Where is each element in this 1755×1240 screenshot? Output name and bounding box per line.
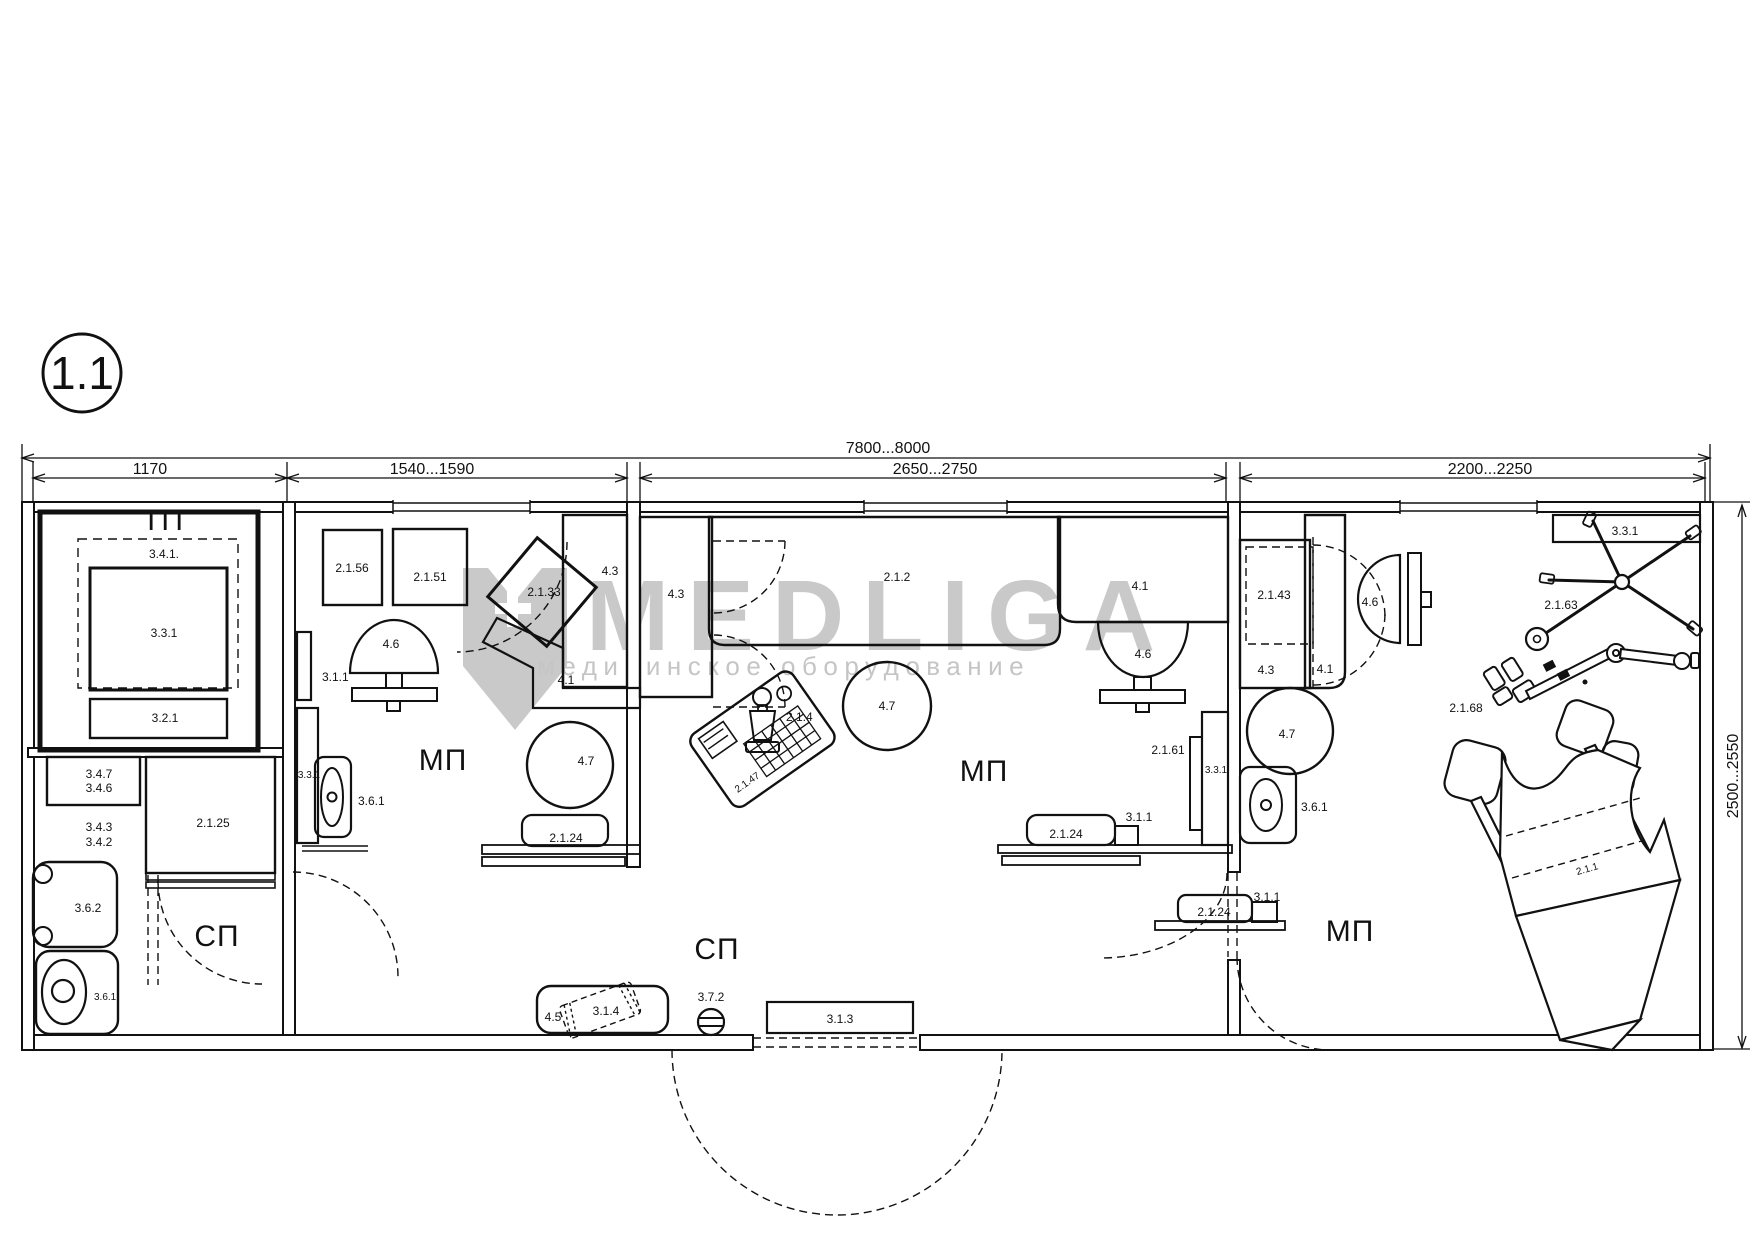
dim-total: 7800...8000 [846, 440, 931, 457]
label-mp2-41: 4.1 [1132, 579, 1149, 593]
dim-seg4: 2200...2250 [1448, 461, 1533, 478]
label-sp1-342: 3.4.2 [86, 835, 113, 849]
label-mp3-46: 4.6 [1362, 595, 1379, 609]
dim-seg3: 2650...2750 [893, 461, 978, 478]
room-label-sp2: СП [694, 933, 739, 966]
label-mp2-2161: 2.1.61 [1151, 743, 1185, 757]
label-mp1-2133: 2.1.33 [527, 585, 561, 599]
label-mp2-43: 4.3 [668, 587, 685, 601]
label-sp1-346: 3.4.6 [86, 781, 113, 795]
label-sp1-361: 3.6.1 [94, 992, 117, 1003]
label-mp3-331: 3.3.1 [1612, 524, 1639, 538]
label-mp2-46: 4.6 [1135, 647, 1152, 661]
label-mp2-214: 2.1.4 [786, 710, 813, 724]
room-label-mp3: МП [1326, 915, 1375, 948]
label-mp3-2124: 2.1.24 [1197, 905, 1231, 919]
label-sp2-314: 3.1.4 [593, 1004, 620, 1018]
label-tp-341: 3.4.1. [149, 547, 179, 561]
label-mp2-2147: 2.1.47 [733, 770, 762, 795]
dim-seg2: 1540...1590 [390, 461, 475, 478]
label-mp3-2168: 2.1.68 [1449, 701, 1483, 715]
label-mp2-47: 4.7 [879, 699, 896, 713]
room-label-tp: ТП [142, 504, 184, 537]
label-mp1-331: 3.3.1 [298, 770, 321, 781]
label-sp1-343: 3.4.3 [86, 820, 113, 834]
floorplan-canvas: MEDLIGA медицинское оборудование 1.1 [0, 0, 1755, 1240]
label-mp2-2124: 2.1.24 [1049, 827, 1083, 841]
label-mp2-311: 3.1.1 [1126, 810, 1153, 824]
label-tp-321: 3.2.1 [152, 711, 179, 725]
room-sp1-equipment [33, 757, 275, 1034]
label-mp3-2143: 2.1.43 [1257, 588, 1291, 602]
dim-right: 2500...2550 [1725, 734, 1742, 819]
label-mp1-2156: 2.1.56 [335, 561, 369, 575]
label-mp3-361: 3.6.1 [1301, 800, 1328, 814]
label-mp2-212: 2.1.2 [884, 570, 911, 584]
label-mp1-43: 4.3 [602, 564, 619, 578]
watermark-tagline: медицинское оборудование [537, 651, 1030, 681]
label-mp1-46: 4.6 [383, 637, 400, 651]
sheet-badge: 1.1 [43, 334, 121, 412]
label-mp1-361: 3.6.1 [358, 794, 385, 808]
label-mp1-47: 4.7 [578, 754, 595, 768]
label-mp2-331: 3.3.1 [1205, 765, 1228, 776]
label-sp2-372: 3.7.2 [698, 990, 725, 1004]
floorplan-svg: MEDLIGA медицинское оборудование 1.1 [0, 0, 1755, 1240]
dim-seg1: 1170 [133, 461, 168, 478]
badge-label: 1.1 [50, 347, 114, 399]
label-mp3-311: 3.1.1 [1254, 890, 1281, 904]
label-mp3-2163: 2.1.63 [1544, 598, 1578, 612]
label-sp1-347: 3.4.7 [86, 767, 113, 781]
label-sp1-362: 3.6.2 [75, 901, 102, 915]
label-tp-331: 3.3.1 [151, 626, 178, 640]
label-mp3-47: 4.7 [1279, 727, 1296, 741]
room-label-mp2: МП [960, 755, 1009, 788]
room-label-sp1: СП [194, 920, 239, 953]
label-mp1-2124: 2.1.24 [549, 831, 583, 845]
label-sp2-45: 4.5 [545, 1010, 562, 1024]
label-mp3-41: 4.1 [1317, 662, 1334, 676]
label-mp3-43: 4.3 [1258, 663, 1275, 677]
label-sp1-2125: 2.1.25 [196, 816, 230, 830]
label-mp1-311: 3.1.1 [322, 670, 349, 684]
label-mp1-2151: 2.1.51 [413, 570, 447, 584]
label-mp1-41: 4.1 [558, 673, 575, 687]
room-label-mp1: МП [419, 744, 468, 777]
label-sp2-313: 3.1.3 [827, 1012, 854, 1026]
